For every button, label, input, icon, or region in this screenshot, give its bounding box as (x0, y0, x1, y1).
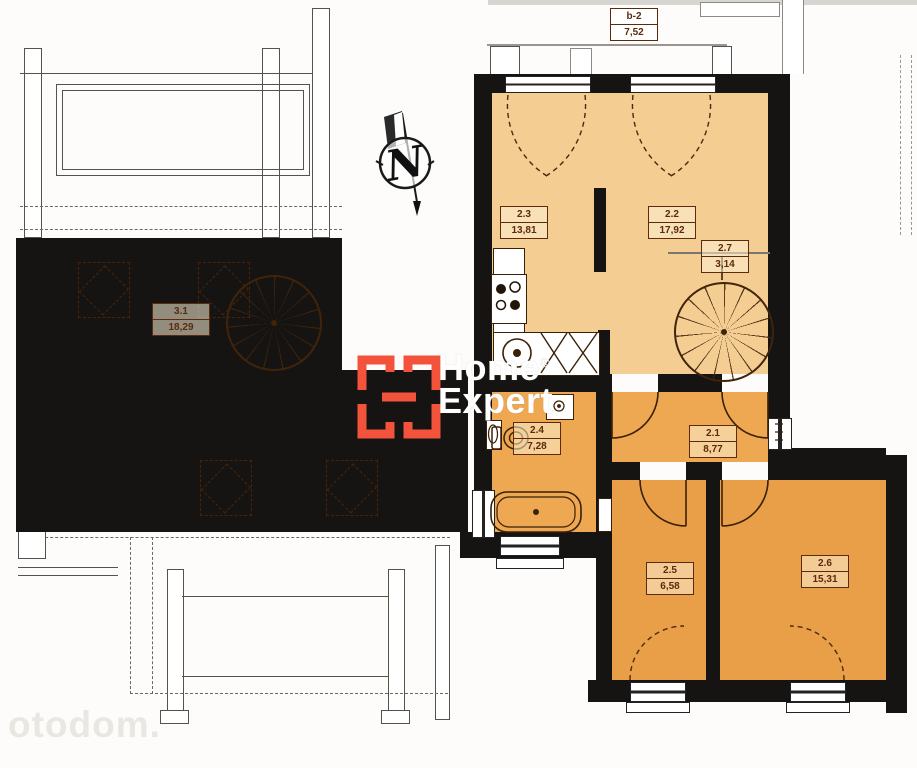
floor-plan-canvas: N Home® Expert b-2 7,52 2.3 13,81 2.2 17… (0, 0, 917, 768)
room-label-2-3: 2.3 13,81 (500, 206, 548, 239)
radiator-ticks (775, 424, 783, 440)
balcony-door-swing-dashed (630, 626, 684, 680)
room-label-2-6: 2.6 15,31 (801, 555, 849, 588)
room-label-2-7: 2.7 3,14 (701, 240, 749, 273)
window-swing-dashed (507, 95, 547, 176)
room-label-3-1: 3.1 18,29 (152, 303, 210, 336)
window-swing-dashed (632, 95, 672, 176)
door-arc (612, 392, 658, 438)
washer-drum-icon (554, 401, 564, 411)
bathtub (491, 492, 581, 532)
door-arc (722, 480, 768, 526)
room-label-2-1: 2.1 8,77 (689, 425, 737, 458)
balcony-door-swing-dashed (790, 626, 844, 680)
brand-word-2: Expert (438, 384, 553, 417)
room-label-2-4: 2.4 7,28 (513, 422, 561, 455)
window-swing-dashed (546, 95, 586, 176)
home-expert-logo-text: Home® Expert (438, 346, 553, 417)
door-arc (640, 480, 686, 526)
registered-mark: ® (540, 355, 550, 370)
room-label-2-5: 2.5 6,58 (646, 562, 694, 595)
window-swing-dashed (671, 95, 711, 176)
stove-burners (496, 282, 520, 310)
room-label-b2: b-2 7,52 (610, 8, 658, 41)
room-label-2-2: 2.2 17,92 (648, 206, 696, 239)
home-expert-logo-icon (352, 350, 446, 444)
